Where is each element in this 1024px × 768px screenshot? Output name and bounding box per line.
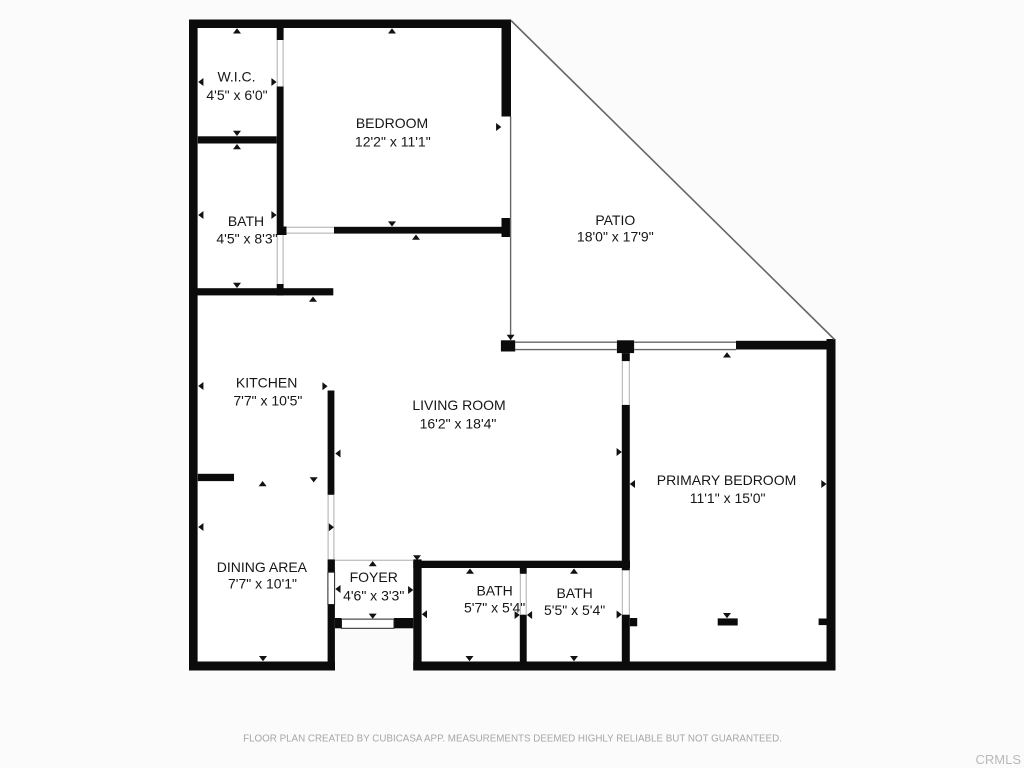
svg-text:FOYER: FOYER — [350, 569, 398, 585]
svg-text:4'5" x 6'0": 4'5" x 6'0" — [206, 87, 267, 103]
svg-text:12'2" x 11'1": 12'2" x 11'1" — [355, 134, 431, 150]
svg-text:7'7" x 10'5": 7'7" x 10'5" — [233, 392, 302, 408]
svg-text:7'7" x 10'1": 7'7" x 10'1" — [228, 576, 297, 592]
svg-text:LIVING ROOM: LIVING ROOM — [412, 397, 505, 413]
svg-text:11'1" x 15'0": 11'1" x 15'0" — [690, 490, 766, 506]
svg-text:4'5" x 8'3": 4'5" x 8'3" — [216, 230, 277, 246]
svg-text:5'7" x 5'4": 5'7" x 5'4" — [464, 600, 525, 616]
svg-text:BATH: BATH — [556, 585, 592, 601]
svg-text:W.I.C.: W.I.C. — [217, 68, 255, 84]
svg-text:4'6" x 3'3": 4'6" x 3'3" — [343, 588, 404, 604]
svg-text:PATIO: PATIO — [595, 212, 635, 228]
svg-text:BEDROOM: BEDROOM — [356, 115, 428, 131]
svg-text:DINING AREA: DINING AREA — [217, 559, 308, 575]
svg-text:16'2" x 18'4": 16'2" x 18'4" — [420, 416, 497, 432]
svg-text:KITCHEN: KITCHEN — [236, 374, 297, 390]
svg-text:FLOOR PLAN CREATED BY CUBICASA: FLOOR PLAN CREATED BY CUBICASA APP. MEAS… — [243, 734, 782, 745]
svg-text:PRIMARY BEDROOM: PRIMARY BEDROOM — [657, 472, 797, 488]
svg-text:CRMLS: CRMLS — [975, 752, 1021, 767]
svg-text:BATH: BATH — [228, 213, 264, 229]
svg-text:BATH: BATH — [476, 583, 512, 599]
svg-text:18'0" x 17'9": 18'0" x 17'9" — [577, 228, 654, 244]
svg-text:5'5" x 5'4": 5'5" x 5'4" — [544, 602, 605, 618]
